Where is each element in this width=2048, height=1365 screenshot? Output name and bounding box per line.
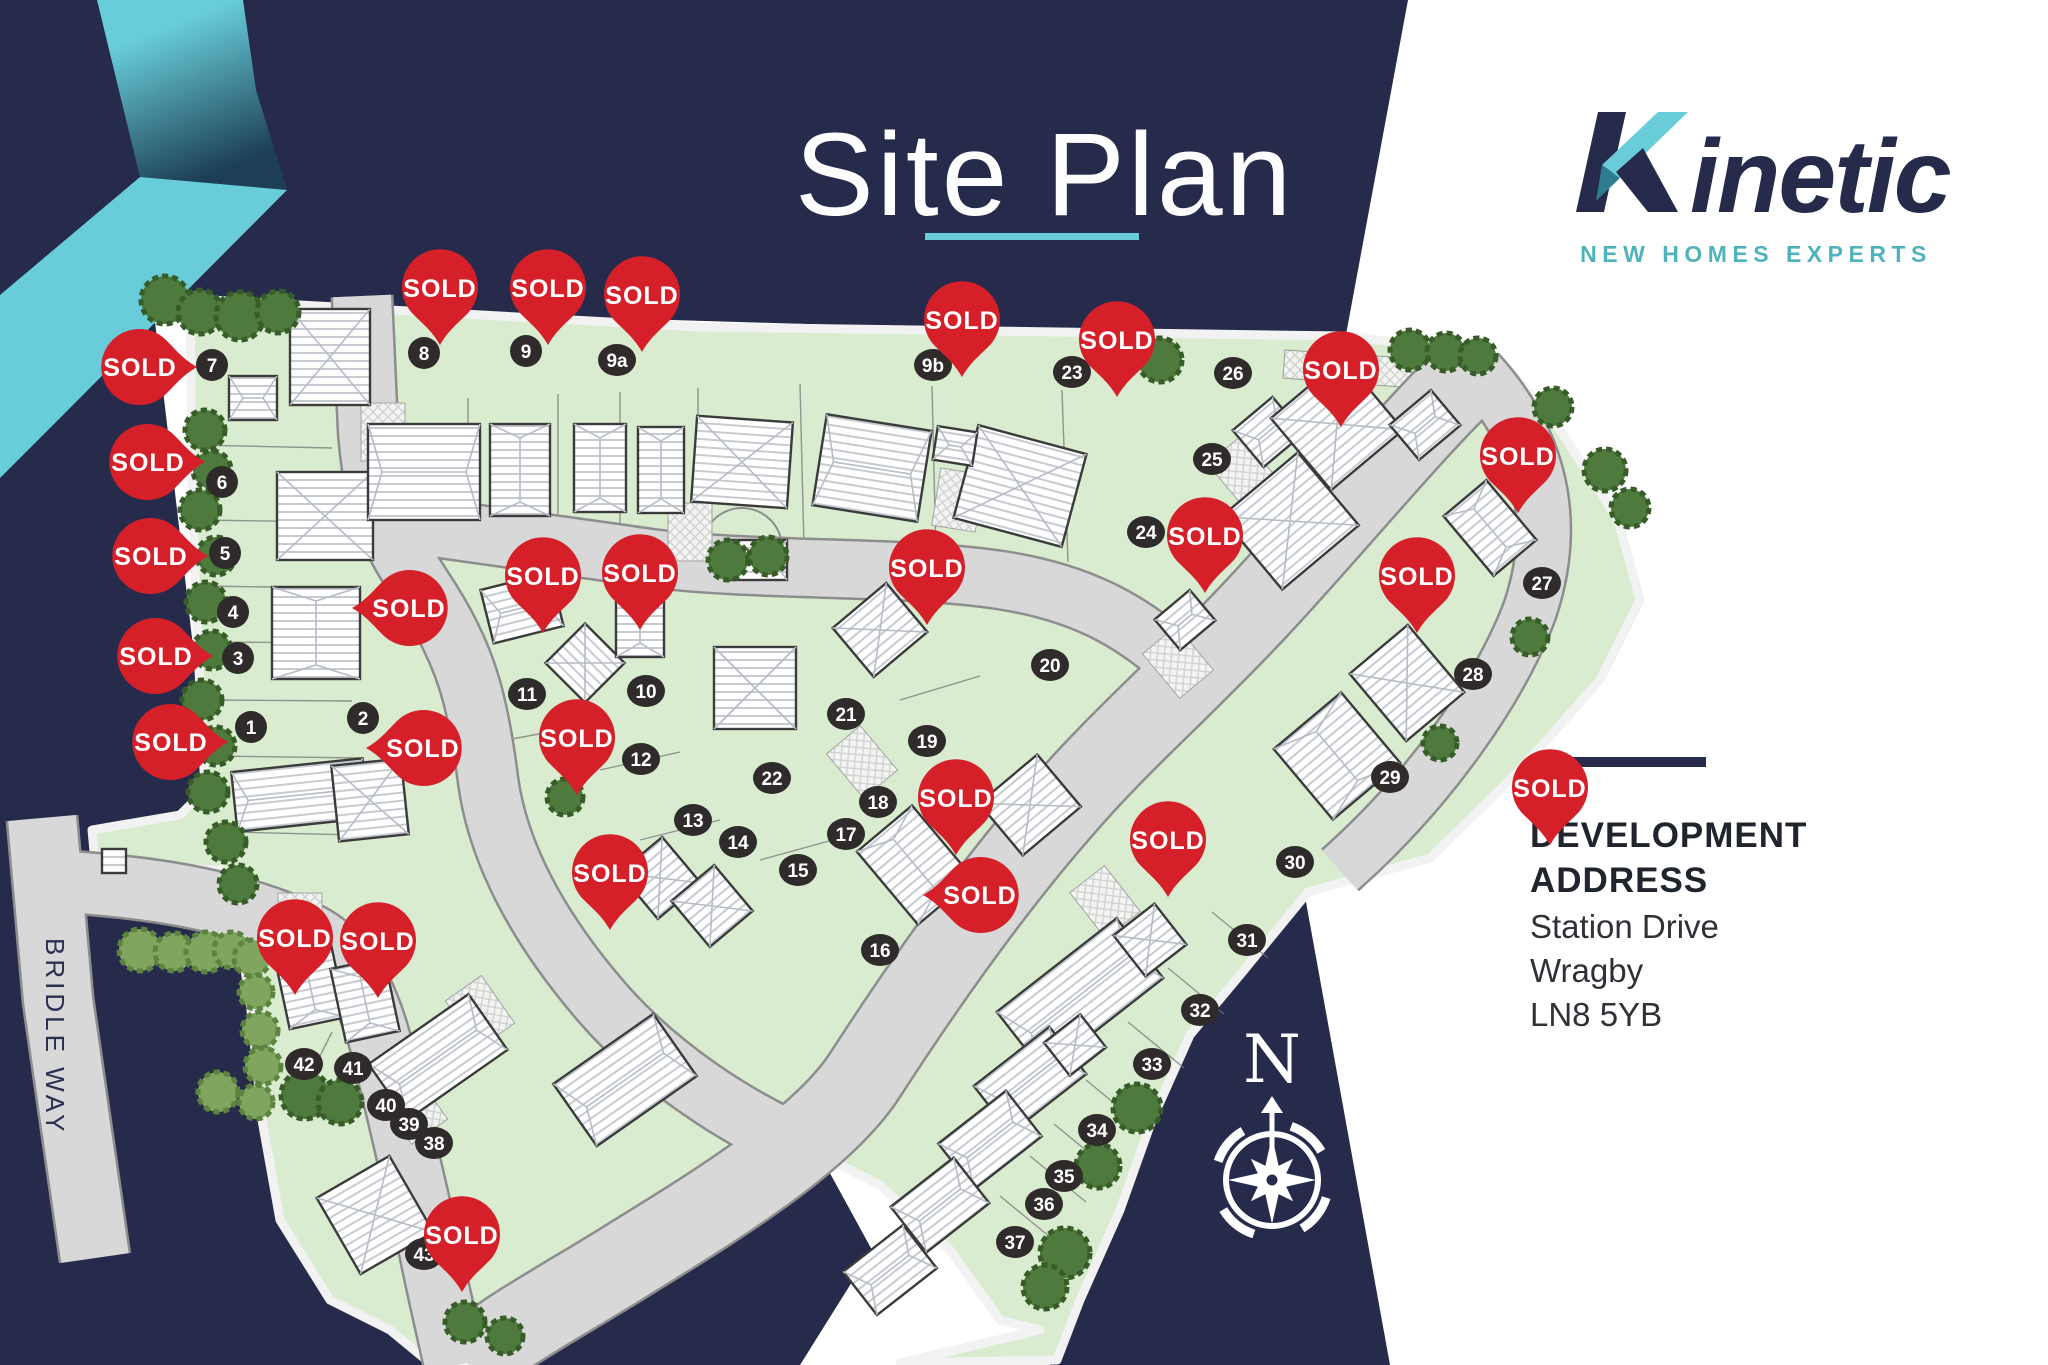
sold-pin-label: SOLD: [341, 928, 414, 956]
plot-number: 33: [1141, 1055, 1162, 1076]
plot-badge-26: 26: [1214, 357, 1252, 389]
house: [638, 427, 684, 513]
tree-icon: [180, 490, 220, 530]
tree-icon: [257, 291, 299, 333]
sold-pin-label: SOLD: [425, 1222, 498, 1250]
plot-number: 21: [835, 705, 857, 726]
plot-number: 12: [630, 750, 651, 771]
address-street: Station Drive: [1530, 908, 1719, 945]
house: [229, 376, 277, 420]
tree-icon: [206, 822, 246, 862]
plot-number: 35: [1053, 1167, 1075, 1188]
sold-pin-label: SOLD: [919, 785, 992, 813]
sold-pin-label: SOLD: [258, 925, 331, 953]
house: [490, 424, 550, 516]
tree-icon: [239, 975, 273, 1009]
plot-number: 14: [727, 833, 749, 854]
tree-icon: [242, 1012, 278, 1048]
plot-number: 40: [375, 1096, 396, 1117]
plot-badge-35: 35: [1045, 1160, 1083, 1192]
plot-number: 26: [1222, 364, 1243, 385]
plot-badge-33: 33: [1133, 1048, 1171, 1080]
address-heading-line1: DEVELOPMENT: [1530, 816, 1807, 855]
sold-pin-label: SOLD: [925, 307, 998, 335]
house: [714, 647, 796, 729]
plot-badge-29: 29: [1371, 761, 1409, 793]
compass-north-label: N: [1243, 1021, 1301, 1098]
plot-number: 11: [517, 685, 538, 706]
street-label-bridle-way: BRIDLE WAY: [40, 938, 70, 1135]
plot-badge-16: 16: [861, 934, 899, 966]
sold-pin-label: SOLD: [111, 449, 184, 477]
plot-badge-25: 25: [1193, 443, 1231, 475]
tree-icon: [749, 537, 787, 575]
plot-badge-27: 27: [1523, 567, 1561, 599]
plot-badge-36: 36: [1025, 1188, 1063, 1220]
plot-number: 19: [916, 732, 937, 753]
plot-badge-31: 31: [1228, 924, 1266, 956]
tree-icon: [1076, 1144, 1120, 1188]
sold-pin-label: SOLD: [603, 560, 676, 588]
plot-badge-5: 5: [209, 537, 241, 569]
sold-pin-label: SOLD: [540, 725, 613, 753]
house: [812, 414, 931, 521]
plot-number: 8: [419, 344, 430, 365]
tree-icon: [245, 1048, 281, 1084]
address-postcode: LN8 5YB: [1530, 996, 1662, 1033]
plot-badge-14: 14: [719, 826, 757, 858]
plot-badge-21: 21: [827, 698, 865, 730]
sold-pin-label: SOLD: [1380, 563, 1453, 591]
plot-number: 22: [761, 769, 782, 790]
plot-number: 13: [682, 811, 703, 832]
title-underline: [925, 233, 1139, 240]
plot-number: 4: [228, 603, 239, 624]
sold-pin-label: SOLD: [605, 282, 678, 310]
sold-pin: SOLD: [101, 329, 197, 405]
tree-icon: [1584, 449, 1626, 491]
plot-badge-9a: 9a: [598, 344, 636, 376]
house: [102, 849, 126, 873]
sold-pin-label: SOLD: [386, 735, 459, 763]
plot-number: 28: [1462, 665, 1483, 686]
plot-badge-30: 30: [1276, 846, 1314, 878]
plot-badge-24: 24: [1127, 516, 1165, 548]
page-title: Site Plan: [795, 109, 1294, 241]
plot-badge-28: 28: [1454, 658, 1492, 690]
plot-badge-38: 38: [415, 1127, 453, 1159]
sold-pin-label: SOLD: [1304, 357, 1377, 385]
plot-number: 41: [342, 1059, 364, 1080]
tree-icon: [178, 290, 222, 334]
plot-badge-6: 6: [206, 466, 238, 498]
plot-number: 20: [1039, 656, 1060, 677]
sold-pin-label: SOLD: [1080, 327, 1153, 355]
kinetic-logo: inetic NEW HOMES EXPERTS: [1576, 112, 1951, 267]
address-heading-line2: ADDRESS: [1530, 861, 1708, 900]
plot-number: 6: [217, 473, 228, 494]
plot-number: 32: [1189, 1001, 1210, 1022]
sold-pin-label: SOLD: [943, 882, 1016, 910]
plot-badge-1: 1: [235, 711, 267, 743]
sold-pin-label: SOLD: [114, 543, 187, 571]
sold-pin-label: SOLD: [134, 729, 207, 757]
plot-badge-7: 7: [196, 349, 228, 381]
tree-icon: [1423, 726, 1457, 760]
plot-number: 9a: [606, 351, 628, 372]
tree-icon: [487, 1318, 523, 1354]
sold-pin-label: SOLD: [1168, 523, 1241, 551]
sold-pin-label: SOLD: [1131, 827, 1204, 855]
plot-number: 37: [1004, 1233, 1025, 1254]
plot-number: 27: [1531, 574, 1552, 595]
plot-badge-22: 22: [753, 762, 791, 794]
plot-number: 34: [1086, 1121, 1108, 1142]
plot-number: 7: [207, 356, 218, 377]
tree-icon: [198, 1072, 238, 1112]
plot-number: 24: [1135, 523, 1157, 544]
plot-number: 39: [398, 1115, 419, 1136]
plot-number: 18: [867, 793, 888, 814]
plot-number: 1: [246, 718, 257, 739]
plot-badge-9: 9: [510, 335, 542, 367]
plot-badge-18: 18: [859, 786, 897, 818]
tree-icon: [188, 772, 228, 812]
sold-pin-label: SOLD: [506, 563, 579, 591]
plot-badge-12: 12: [622, 743, 660, 775]
plot-badge-19: 19: [908, 725, 946, 757]
plot-badge-8: 8: [408, 337, 440, 369]
plot-number: 3: [233, 649, 244, 670]
tree-icon: [445, 1302, 485, 1342]
plot-badge-15: 15: [779, 854, 817, 886]
sold-pin-label: SOLD: [1481, 443, 1554, 471]
sold-pin-label: SOLD: [573, 860, 646, 888]
sold-pin-label: SOLD: [890, 555, 963, 583]
tree-icon: [318, 1080, 362, 1124]
site-plan-page: BRIDLE WAY N Site Plan inetic NEW HOMES …: [0, 0, 2048, 1365]
plot-number: 16: [869, 941, 890, 962]
brand-tagline: NEW HOMES EXPERTS: [1580, 241, 1932, 267]
tree-icon: [185, 410, 225, 450]
sold-pin-label: SOLD: [103, 354, 176, 382]
tree-icon: [219, 865, 257, 903]
plot-number: 23: [1061, 363, 1082, 384]
tree-icon: [239, 1085, 273, 1119]
tree-icon: [1611, 489, 1649, 527]
plot-number: 31: [1236, 931, 1258, 952]
plot-number: 15: [787, 861, 809, 882]
plot-badge-41: 41: [334, 1052, 372, 1084]
tree-icon: [1390, 330, 1430, 370]
plot-badge-37: 37: [996, 1226, 1034, 1258]
plot-badge-32: 32: [1181, 994, 1219, 1026]
plot-badge-23: 23: [1053, 356, 1091, 388]
plot-badge-13: 13: [674, 804, 712, 836]
plot-badge-34: 34: [1078, 1114, 1116, 1146]
address-town: Wragby: [1530, 952, 1644, 989]
house: [368, 424, 480, 520]
plot-badge-42: 42: [285, 1048, 323, 1080]
plot-number: 10: [635, 682, 656, 703]
tree-icon: [1023, 1265, 1067, 1309]
plot-number: 38: [423, 1134, 444, 1155]
plot-number: 5: [220, 544, 231, 565]
plot-badge-10: 10: [627, 675, 665, 707]
kinetic-k-icon: [1576, 112, 1688, 212]
plot-number: 29: [1379, 768, 1400, 789]
tree-icon: [708, 540, 748, 580]
house: [290, 309, 370, 405]
site-plan-canvas: BRIDLE WAY N Site Plan inetic NEW HOMES …: [0, 0, 2048, 1365]
sold-pin-label: SOLD: [511, 275, 584, 303]
plot-number: 9: [521, 342, 532, 363]
plot-badge-17: 17: [827, 818, 865, 850]
house: [691, 416, 793, 508]
plot-number: 25: [1201, 450, 1223, 471]
plot-number: 36: [1033, 1195, 1054, 1216]
plot-number: 9b: [922, 356, 944, 377]
plot-badge-2: 2: [347, 702, 379, 734]
plot-number: 17: [835, 825, 856, 846]
house: [933, 426, 978, 466]
plot-badge-11: 11: [508, 678, 546, 710]
sold-pin-label: SOLD: [403, 275, 476, 303]
plot-badge-3: 3: [222, 642, 254, 674]
plot-number: 42: [293, 1055, 314, 1076]
house: [574, 424, 626, 512]
plot-badge-4: 4: [217, 596, 249, 628]
plot-number: 30: [1284, 853, 1305, 874]
sold-pin-label: SOLD: [372, 595, 445, 623]
brand-name-rest: inetic: [1690, 119, 1951, 235]
page-header: Site Plan: [795, 109, 1294, 241]
plot-badge-20: 20: [1031, 649, 1069, 681]
house: [272, 587, 360, 679]
sold-pin-label: SOLD: [1513, 775, 1586, 803]
tree-icon: [1512, 619, 1548, 655]
plot-number: 2: [358, 709, 369, 730]
tree-icon: [1534, 388, 1572, 426]
tree-icon: [1113, 1084, 1161, 1132]
sold-pin-label: SOLD: [119, 643, 192, 671]
house: [277, 472, 373, 560]
tree-icon: [1460, 338, 1496, 374]
